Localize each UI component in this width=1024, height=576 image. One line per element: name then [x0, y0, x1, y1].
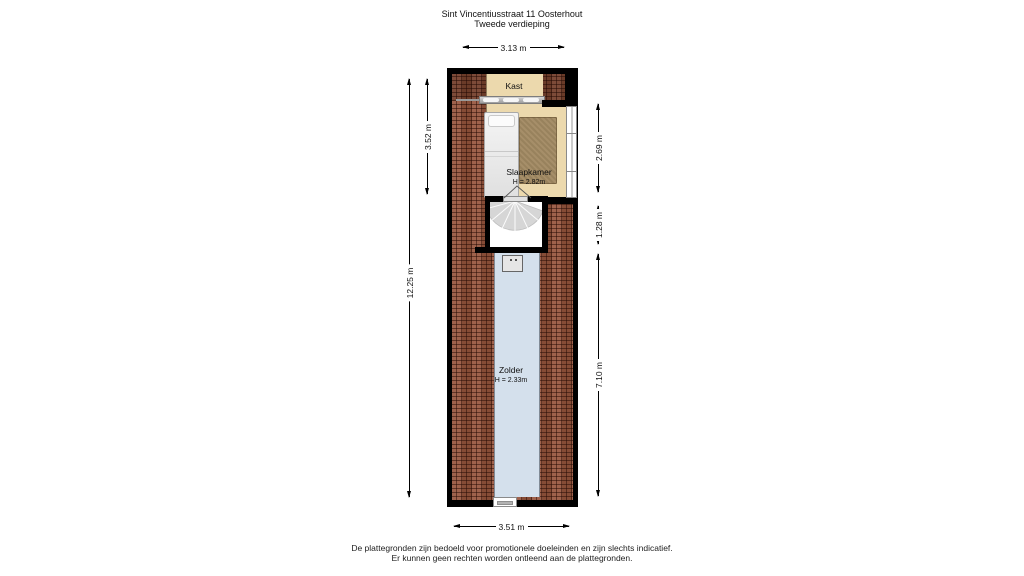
room-label-zolder: Zolder H = 2.33m: [472, 366, 550, 385]
arrow-right-icon: [558, 45, 565, 49]
dimension-left-outer: 12.25 m: [406, 78, 413, 498]
room-name: Zolder: [472, 366, 550, 375]
arrow-down-icon: [596, 186, 600, 193]
wardrobe-door: [523, 98, 539, 102]
arrow-right-icon: [563, 524, 570, 528]
arrow-up-icon: [425, 78, 429, 85]
page-title: Sint Vincentiusstraat 11 Oosterhout: [0, 9, 1024, 19]
window-bottom: [493, 497, 517, 507]
wall-stair-right: [542, 196, 548, 253]
arrow-down-icon: [425, 188, 429, 195]
room-height: H = 2.33m: [472, 377, 550, 385]
window-frame: [497, 501, 513, 505]
arrow-up-icon: [407, 78, 411, 85]
dimension-label: 3.52 m: [423, 121, 433, 153]
room-height: H = 2.82m: [488, 179, 570, 187]
dimension-label: 1.28 m: [594, 209, 604, 241]
disclaimer-line-2: Er kunnen geen rechten worden ontleend a…: [0, 553, 1024, 563]
dimension-label: 2.69 m: [594, 132, 604, 164]
dimension-left-inner: 3.52 m: [424, 78, 431, 195]
arrow-up-icon: [596, 253, 600, 260]
duvet-fold: [485, 151, 518, 152]
boiler-knob: [510, 259, 512, 261]
dimension-top: 3.13 m: [462, 44, 565, 51]
arrow-up-icon: [596, 103, 600, 110]
disclaimer-line-1: De plattegronden zijn bedoeld voor promo…: [0, 543, 1024, 553]
wardrobe: [479, 96, 545, 104]
wall-stair-top-left: [488, 196, 503, 202]
arrow-left-icon: [453, 524, 460, 528]
room-name: Slaapkamer: [488, 168, 570, 177]
dimension-right-middle: 1.28 m: [595, 205, 602, 245]
wall-stair-left: [485, 196, 490, 253]
dimension-label: 7.10 m: [594, 359, 604, 391]
wardrobe-rail: [456, 99, 481, 101]
arrow-down-icon: [596, 490, 600, 497]
spiral-staircase: [490, 201, 542, 248]
room-label-kast: Kast: [488, 82, 540, 91]
wall-top-right-corner: [565, 68, 578, 107]
arrow-left-icon: [462, 45, 469, 49]
window-frame: [571, 107, 572, 197]
window-frame: [567, 133, 576, 134]
boiler-knob: [515, 259, 517, 261]
arrow-down-icon: [407, 491, 411, 498]
boiler-unit: [502, 255, 523, 272]
dimension-bottom: 3.51 m: [453, 523, 570, 530]
roof-shade-right: [542, 74, 566, 101]
dimension-label: 12.25 m: [405, 265, 415, 302]
duvet-fold: [485, 156, 518, 157]
pillow: [488, 115, 515, 127]
dimension-right-bottom: 7.10 m: [595, 253, 602, 497]
page-subtitle: Tweede verdieping: [0, 19, 1024, 29]
floorplan-page: Sint Vincentiusstraat 11 Oosterhout Twee…: [0, 0, 1024, 576]
wardrobe-door: [503, 98, 519, 102]
dimension-label: 3.13 m: [498, 43, 530, 53]
dimension-label: 3.51 m: [496, 522, 528, 532]
room-label-slaapkamer: Slaapkamer H = 2.82m: [488, 168, 570, 187]
dimension-right-top: 2.69 m: [595, 103, 602, 193]
wall-stair-bottom: [475, 247, 548, 253]
wall-bedroom-bottom-right: [542, 197, 578, 204]
wardrobe-door: [483, 98, 499, 102]
